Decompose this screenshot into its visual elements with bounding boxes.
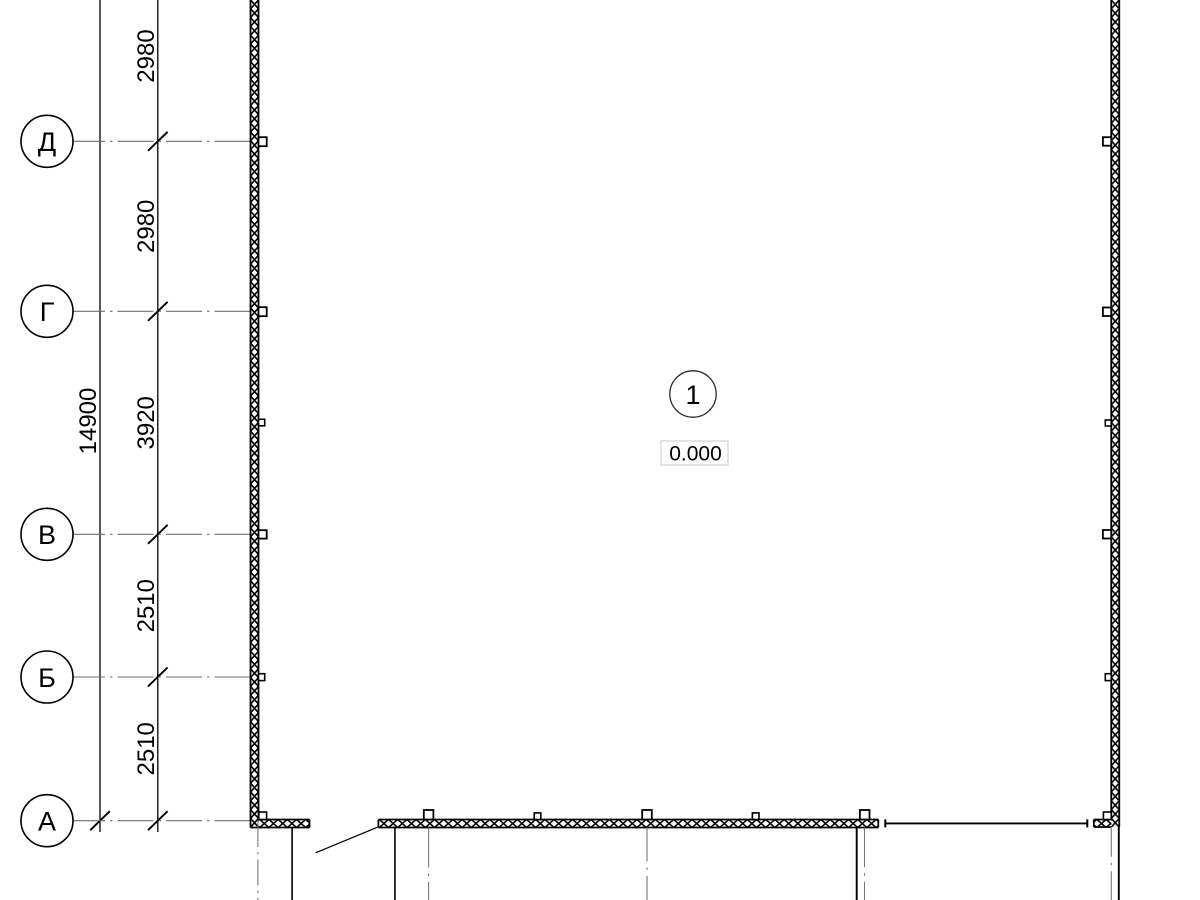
svg-text:3920: 3920	[133, 396, 160, 449]
svg-text:2510: 2510	[133, 722, 160, 775]
svg-text:Д: Д	[38, 127, 56, 157]
svg-text:Б: Б	[38, 663, 56, 693]
svg-text:2980: 2980	[133, 29, 160, 82]
svg-text:А: А	[38, 807, 56, 837]
svg-text:1: 1	[685, 380, 700, 410]
svg-text:2980: 2980	[133, 200, 160, 253]
svg-text:В: В	[38, 520, 56, 550]
svg-text:14900: 14900	[75, 388, 102, 455]
svg-text:0.000: 0.000	[669, 443, 722, 466]
svg-text:2510: 2510	[133, 579, 160, 632]
svg-text:Г: Г	[40, 297, 55, 327]
